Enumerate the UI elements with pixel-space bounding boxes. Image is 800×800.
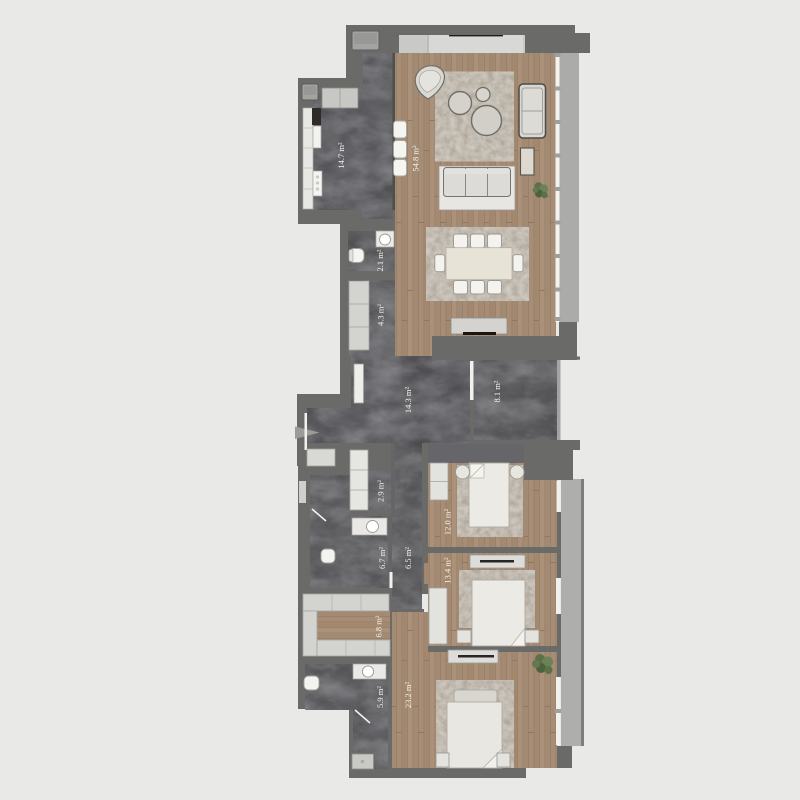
svg-text:4.3 m²: 4.3 m² xyxy=(375,304,385,326)
svg-text:6.7 m²: 6.7 m² xyxy=(377,547,387,569)
svg-text:23.2 m²: 23.2 m² xyxy=(403,681,413,708)
svg-text:2.1 m²: 2.1 m² xyxy=(375,249,385,271)
svg-text:14.7 m²: 14.7 m² xyxy=(336,142,346,169)
svg-text:13.4 m²: 13.4 m² xyxy=(443,557,453,584)
svg-text:8.1 m²: 8.1 m² xyxy=(492,380,502,402)
svg-text:14.3 m²: 14.3 m² xyxy=(403,386,413,413)
svg-text:2.9 m²: 2.9 m² xyxy=(376,480,386,502)
svg-text:6.5 m²: 6.5 m² xyxy=(403,547,413,569)
svg-text:54.8 m²: 54.8 m² xyxy=(411,145,421,172)
svg-text:6.8 m²: 6.8 m² xyxy=(374,615,384,637)
svg-text:5.9 m²: 5.9 m² xyxy=(375,686,385,708)
svg-text:12.0 m²: 12.0 m² xyxy=(443,508,453,535)
